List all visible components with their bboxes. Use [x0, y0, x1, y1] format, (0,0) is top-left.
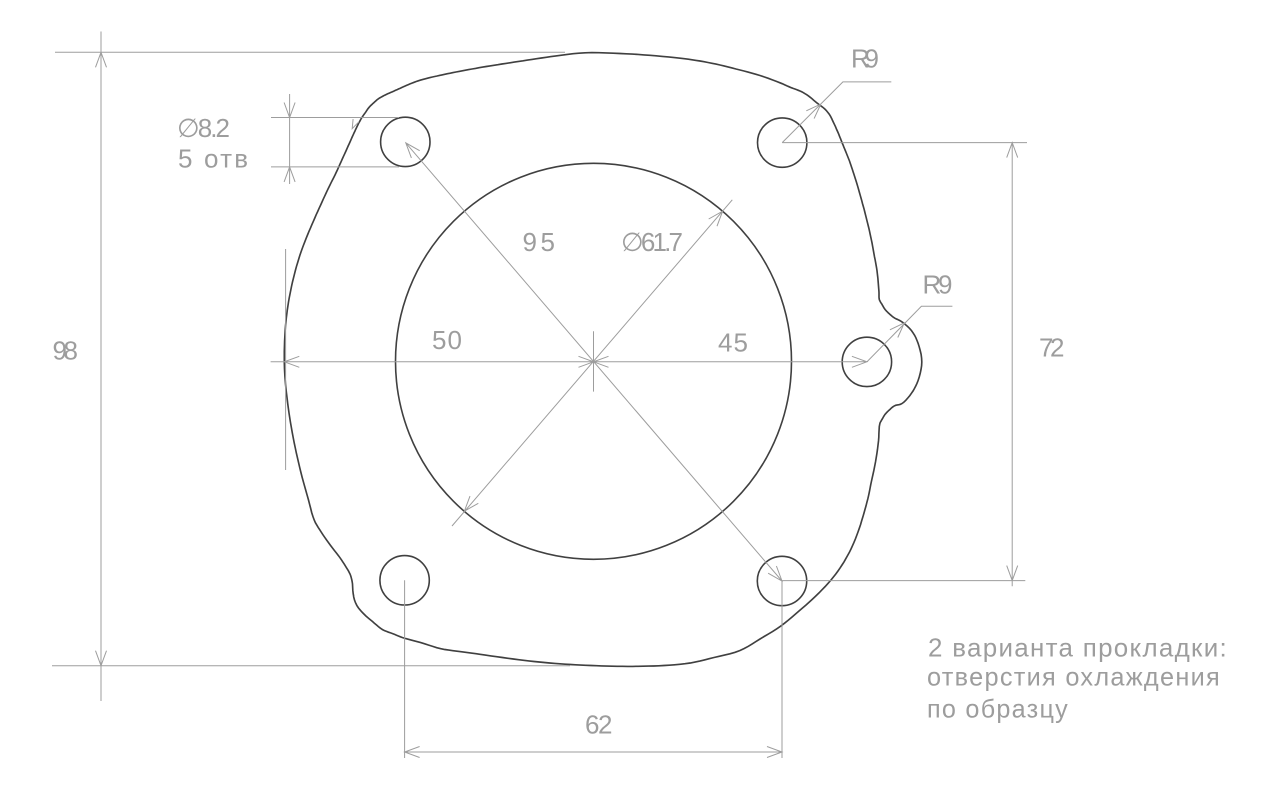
- svg-text:∅61.7: ∅61.7: [621, 227, 683, 257]
- svg-text:2 варианта прокладки:: 2 варианта прокладки:: [928, 633, 1228, 663]
- svg-text:72: 72: [1039, 333, 1065, 363]
- svg-text:62: 62: [585, 710, 613, 740]
- svg-text:45: 45: [718, 328, 748, 358]
- svg-text:98: 98: [53, 336, 79, 366]
- svg-text:по образцу: по образцу: [927, 694, 1069, 724]
- svg-text:отверстия охлаждения: отверстия охлаждения: [927, 662, 1221, 692]
- svg-text:5 отв: 5 отв: [178, 144, 248, 174]
- svg-text:50: 50: [432, 325, 462, 355]
- svg-text:R9: R9: [851, 44, 879, 74]
- svg-text:R9: R9: [923, 269, 953, 299]
- svg-text:∅8.2: ∅8.2: [177, 113, 230, 143]
